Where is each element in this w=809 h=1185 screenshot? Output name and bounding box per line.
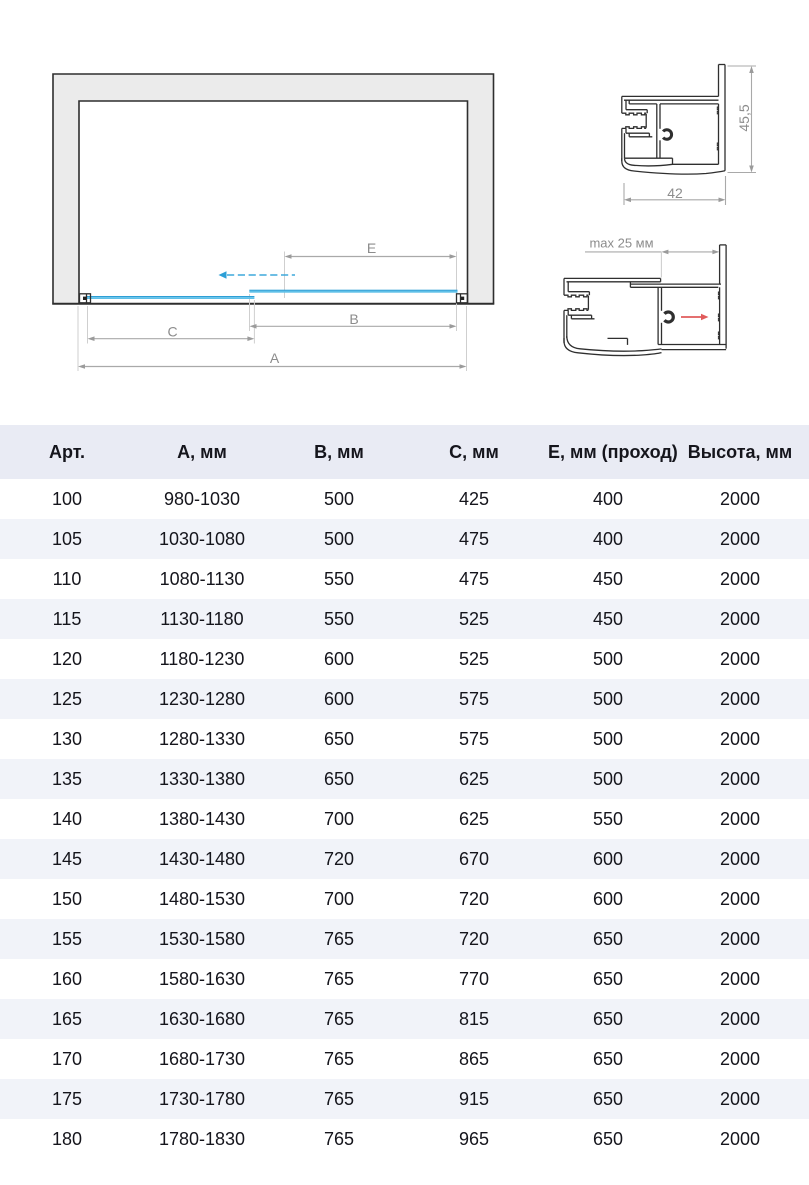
svg-text:B: B — [349, 311, 358, 327]
svg-text:E: E — [367, 240, 376, 256]
svg-text:max 25 мм: max 25 мм — [589, 236, 653, 251]
svg-text:A: A — [270, 350, 280, 366]
svg-text:45,5: 45,5 — [736, 104, 752, 131]
svg-text:C: C — [167, 324, 177, 340]
svg-text:42: 42 — [667, 185, 683, 201]
